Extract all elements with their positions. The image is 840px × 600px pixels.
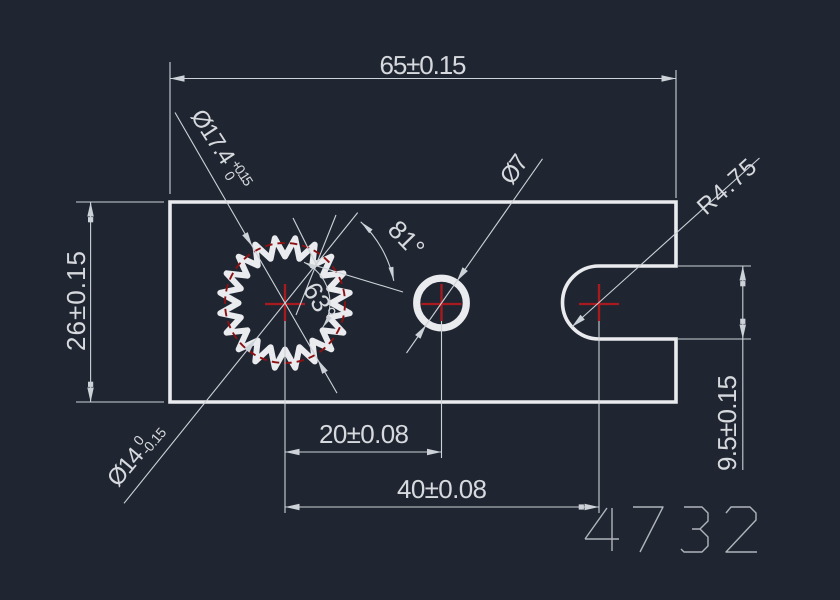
svg-text:9.5±0.15: 9.5±0.15: [712, 375, 742, 471]
svg-text:26±0.15: 26±0.15: [61, 251, 91, 351]
svg-text:20±0.08: 20±0.08: [319, 419, 409, 449]
svg-text:40±0.08: 40±0.08: [397, 474, 487, 504]
svg-text:65±0.15: 65±0.15: [380, 50, 467, 80]
